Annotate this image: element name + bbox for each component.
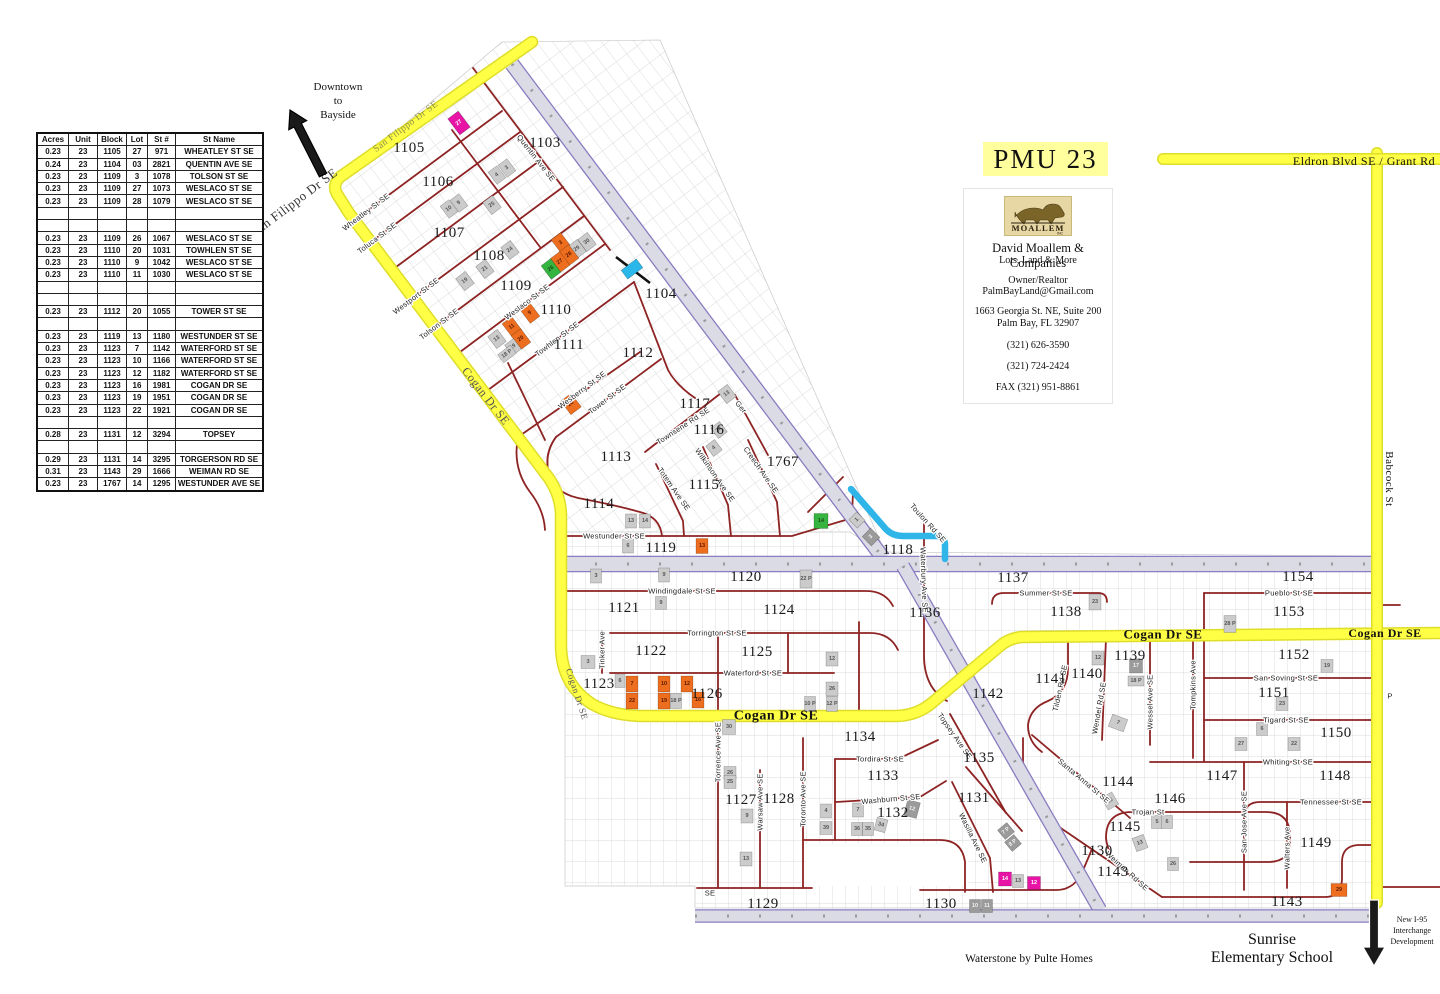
block-label-1151-35: 1151 (1258, 685, 1289, 701)
block-label-1153-24: 1153 (1273, 604, 1304, 620)
lot-12-70: 12 (1092, 651, 1104, 665)
cell (98, 318, 127, 330)
table-row: 0.29231131143295TORGERSON RD SE (37, 453, 263, 465)
cell: 0.23 (37, 478, 69, 491)
cell (176, 220, 264, 232)
lot-25-53: 25 (724, 776, 736, 789)
cell (98, 293, 127, 305)
cell: 12 (127, 429, 148, 441)
lot-5-81: 5 (1152, 816, 1163, 829)
lot-35-60: 35 (863, 823, 874, 836)
lot-6-82: 6 (1162, 816, 1173, 829)
lot-number: 26 (829, 686, 835, 692)
cell: TOLSON ST SE (176, 170, 264, 182)
cell: WATERFORD ST SE (176, 355, 264, 367)
block-label-1120-18: 1120 (730, 569, 761, 585)
lot-22-79: 22 (1288, 738, 1300, 751)
block-label-1130-52: 1130 (925, 896, 956, 912)
cell: 11 (127, 269, 148, 281)
block-label-1116-11: 1116 (694, 422, 725, 438)
block-label-1152-28: 1152 (1278, 647, 1309, 663)
cell: 23 (69, 379, 98, 391)
cell (148, 281, 176, 293)
block-label-1103-1: 1103 (529, 135, 560, 151)
col-header-unit: Unit (69, 133, 98, 146)
lot-6-39: 6 (615, 675, 625, 688)
cell: 0.23 (37, 367, 69, 379)
cell: 1031 (148, 244, 176, 256)
lot-19-75: 19 (1321, 660, 1333, 673)
block-label-1117-10: 1117 (680, 396, 711, 412)
block-label-1142-34: 1142 (972, 686, 1003, 702)
cell (69, 293, 98, 305)
cell: 1123 (98, 404, 127, 416)
block-label-1148-40: 1148 (1319, 768, 1350, 784)
cell (69, 207, 98, 219)
cell (69, 220, 98, 232)
cell: 1030 (148, 269, 176, 281)
table-row: 0.23231109281079WESLACO ST SE (37, 195, 263, 207)
cell: 0.23 (37, 146, 69, 158)
cell: WESTUNDER AVE SE (176, 478, 264, 491)
lot-7-40: 7 (626, 676, 638, 692)
lot-18-p-44: 18 P (670, 694, 682, 709)
street-label-windingdale-st-se: Windingdale St SE (648, 587, 716, 596)
sunrise-label-line-1: Elementary School (1211, 949, 1334, 966)
block-label-1130-50: 1130 (1081, 843, 1112, 859)
cell: 1295 (148, 478, 176, 491)
lot-number: 39 (823, 825, 829, 831)
lot-3-38: 3 (581, 656, 595, 669)
lot-table-body: 0.2323110527971WHEATLEY ST SE0.242311040… (37, 146, 263, 491)
block-label-1109-5: 1109 (500, 278, 531, 294)
table-row: 0.23231123221921COGAN DR SE (37, 404, 263, 416)
lot-11-69: 11 (982, 900, 993, 913)
col-header-st-: St # (148, 133, 176, 146)
lot-number: 28 P (1224, 621, 1236, 627)
block-label-1133-41: 1133 (867, 768, 898, 784)
cell (176, 416, 264, 428)
street-label-pueblo-st-se: Pueblo St SE (1265, 589, 1313, 598)
street-label-san-soving-st-se: San Soving St SE (1254, 674, 1318, 683)
lot-number: 22 P (800, 576, 812, 582)
cell (37, 318, 69, 330)
lot-29-85: 29 (1331, 884, 1347, 897)
cell (127, 416, 148, 428)
cell: WESLACO ST SE (176, 183, 264, 195)
cell: 0.23 (37, 256, 69, 268)
lot-number: 6 (626, 543, 629, 549)
lot-number: 23 (1092, 599, 1098, 605)
street-label-se: SE (705, 889, 716, 898)
cell: 1123 (98, 392, 127, 404)
cell: 03 (127, 158, 148, 170)
cell: 7 (127, 343, 148, 355)
lot-number: 5 (1155, 819, 1158, 825)
lot-number: 6 (1165, 819, 1168, 825)
street-label-wessel-ave-se: Wessel Ave SE (1146, 675, 1155, 730)
lot-18-p-72: 18 P (1128, 676, 1144, 686)
block-label-1115-14: 1115 (689, 477, 720, 493)
col-header-lot: Lot (127, 133, 148, 146)
cell: WESLACO ST SE (176, 232, 264, 244)
table-row: 0.23231123121182WATERFORD ST SE (37, 367, 263, 379)
cell: 1067 (148, 232, 176, 244)
block-label-1122-26: 1122 (635, 643, 666, 659)
block-label-1137-19: 1137 (997, 570, 1028, 586)
cell: 0.23 (37, 379, 69, 391)
table-row: 0.24231104032821QUENTIN AVE SE (37, 158, 263, 170)
cell: 23 (69, 453, 98, 465)
cell (176, 318, 264, 330)
cell: 1110 (98, 244, 127, 256)
realtor-card: MOALLEM INC David Moallem & Companies Lo… (963, 188, 1113, 404)
cell: 1767 (98, 478, 127, 491)
cell: 0.23 (37, 170, 69, 182)
lot-number: 10 (972, 903, 978, 909)
block-label-1131-42: 1131 (958, 790, 989, 806)
cell: 1921 (148, 404, 176, 416)
cell (127, 441, 148, 453)
lot-number: 27 (1238, 741, 1244, 747)
cell: 1073 (148, 183, 176, 195)
cell (176, 281, 264, 293)
block-label-1111-8: 1111 (554, 337, 584, 353)
cell: 0.29 (37, 453, 69, 465)
lot-number: 18 P (670, 698, 682, 704)
street-label-tigard-st-se: Tigard St SE (1263, 716, 1309, 725)
road-label-cogan-dr-se-4: Cogan Dr SE (734, 709, 819, 724)
downtown-label-line-1: to (334, 95, 343, 107)
lot-13-66: 13 (1013, 875, 1024, 888)
cell (98, 281, 127, 293)
cell: 22 (127, 404, 148, 416)
cell: 2821 (148, 158, 176, 170)
block-label-1121-21: 1121 (608, 600, 639, 616)
waterstone-label: Waterstone by Pulte Homes (965, 953, 1093, 965)
street-label-walters-ave: Walters Ave (1283, 827, 1292, 870)
lot-number: 13 (743, 856, 749, 862)
block-label-1112-9: 1112 (623, 345, 654, 361)
block-label-1123-32: 1123 (583, 676, 614, 692)
cell: 1951 (148, 392, 176, 404)
table-row: 0.23231112201055TOWER ST SE (37, 306, 263, 318)
cell: 1104 (98, 158, 127, 170)
cell: COGAN DR SE (176, 404, 264, 416)
block-label-1139-29: 1139 (1114, 648, 1145, 664)
cell: 27 (127, 146, 148, 158)
lot-number: 12 P (826, 701, 838, 707)
lot-number: 26 (1170, 861, 1176, 867)
i95-label-line-2: Development (1390, 937, 1434, 946)
table-row: 0.23231123101166WATERFORD ST SE (37, 355, 263, 367)
lot-10-42: 10 (658, 676, 670, 692)
block-label-1147-39: 1147 (1206, 768, 1237, 784)
road-label-cogan-dr-se-5: Cogan Dr SE (1124, 627, 1203, 642)
table-row-empty (37, 281, 263, 293)
road-label-eldron-blvd-se-grant-rd-7: Eldron Blvd SE / Grant Rd (1293, 154, 1435, 168)
lot-number: 9 (659, 600, 662, 606)
lot-number: 14 (818, 518, 825, 524)
email-address: PalmBayLand@Gmail.com (964, 286, 1112, 297)
phone-1: (321) 626-3590 (964, 340, 1112, 351)
lot-number: 19 (1324, 663, 1330, 669)
table-row-empty (37, 416, 263, 428)
lot-14-65: 14 (999, 872, 1012, 886)
lot-12-p-50: 12 P (826, 697, 838, 712)
cell: 1109 (98, 195, 127, 207)
lot-13-55: 13 (740, 852, 752, 866)
block-label-1110-7: 1110 (541, 302, 572, 318)
block-label-1143-54: 1143 (1271, 894, 1302, 910)
street-label-westunder-st-se: Westunder St SE (583, 532, 645, 541)
cell (148, 441, 176, 453)
block-label-1144-47: 1144 (1102, 774, 1133, 790)
table-row: 0.23231119131180WESTUNDER ST SE (37, 330, 263, 342)
i95-label-line-1: Interchange (1393, 926, 1431, 935)
cell (127, 318, 148, 330)
block-label-1126-33: 1126 (691, 686, 722, 702)
cell: 3295 (148, 453, 176, 465)
cell (98, 220, 127, 232)
cell: 3294 (148, 429, 176, 441)
lot-13-32: 13 (696, 539, 708, 554)
cell: WESLACO ST SE (176, 269, 264, 281)
cell: 0.23 (37, 404, 69, 416)
cell: 16 (127, 379, 148, 391)
lot-3-33: 3 (591, 569, 602, 583)
cell (127, 207, 148, 219)
lot-number: 13 (1015, 878, 1021, 884)
table-row: 0.2323111091042WESLACO ST SE (37, 256, 263, 268)
lot-number: 14 (1002, 876, 1009, 882)
lot-table: AcresUnitBlockLotSt #St Name 0.232311052… (36, 132, 264, 492)
cell: 1166 (148, 355, 176, 367)
block-label-1106-2: 1106 (422, 174, 453, 190)
col-header-acres: Acres (37, 133, 69, 146)
street-label-whiting-st-se: Whiting St SE (1263, 758, 1313, 767)
cell: 1182 (148, 367, 176, 379)
lot-23-37: 23 (1089, 594, 1101, 610)
owner-role: Owner/Realtor (964, 275, 1112, 286)
lot-number: 23 (1279, 701, 1285, 707)
lot-26-84: 26 (1168, 858, 1179, 871)
table-row: 0.31231143291666WEIMAN RD SE (37, 466, 263, 478)
cell: 19 (127, 392, 148, 404)
street-label-tennessee-st-se: Tennessee St SE (1300, 798, 1362, 807)
cell (69, 416, 98, 428)
cell: WATERFORD ST SE (176, 343, 264, 355)
lot-4-56: 4 (821, 804, 832, 818)
cell: 13 (127, 330, 148, 342)
cell: WEIMAN RD SE (176, 466, 264, 478)
lot-36-59: 36 (852, 823, 863, 836)
lot-number: 29 (1336, 887, 1342, 893)
cell: 14 (127, 478, 148, 491)
cell (176, 207, 264, 219)
cell: 1110 (98, 256, 127, 268)
lot-9-36: 9 (656, 597, 667, 610)
table-row-empty (37, 441, 263, 453)
cell: 12 (127, 367, 148, 379)
cell: 1131 (98, 453, 127, 465)
cell: 1131 (98, 429, 127, 441)
city-state-zip: Palm Bay, FL 32907 (964, 318, 1112, 329)
table-row: 0.23231109271073WESLACO ST SE (37, 183, 263, 195)
cell: WESLACO ST SE (176, 256, 264, 268)
table-row: 0.23231110201031TOWHLEN ST SE (37, 244, 263, 256)
cell (37, 441, 69, 453)
block-label-1108-4: 1108 (473, 248, 504, 264)
cell (148, 207, 176, 219)
lot-number: 3 (594, 573, 597, 579)
cell: 23 (69, 404, 98, 416)
block-label-1138-23: 1138 (1050, 604, 1081, 620)
table-row: 0.23231109261067WESLACO ST SE (37, 232, 263, 244)
moallem-logo: MOALLEM INC (1004, 196, 1072, 236)
lot-26-48: 26 (826, 682, 838, 696)
lot-9-54: 9 (741, 809, 753, 823)
cell: WHEATLEY ST SE (176, 146, 264, 158)
lot-28-p-74: 28 P (1224, 616, 1236, 633)
lot-number: 7 (630, 681, 633, 687)
cell: 1981 (148, 379, 176, 391)
cell (69, 318, 98, 330)
lot-number: 9 (745, 813, 748, 819)
cell: 1109 (98, 170, 127, 182)
cell (69, 281, 98, 293)
block-label-1150-36: 1150 (1320, 725, 1351, 741)
lot-number: 9 (662, 572, 665, 578)
lot-19-43: 19 (658, 693, 670, 709)
cell: 3 (127, 170, 148, 182)
block-label-1135-38: 1135 (963, 750, 994, 766)
street-label-trojan-st: Trojan St (1132, 808, 1165, 817)
cell: 1666 (148, 466, 176, 478)
table-row-empty (37, 207, 263, 219)
table-row: 0.23231110111030WESLACO ST SE (37, 269, 263, 281)
cell (98, 441, 127, 453)
lot-6-31: 6 (623, 539, 634, 553)
cell: 23 (69, 146, 98, 158)
lot-number: 30 (726, 724, 732, 730)
cell: 0.23 (37, 355, 69, 367)
lot-number: 14 (642, 518, 649, 524)
cell: 23 (69, 306, 98, 318)
cell: 0.23 (37, 244, 69, 256)
lot-14-26: 14 (814, 514, 828, 529)
downtown-label-line-2: Bayside (320, 109, 356, 121)
cell (37, 220, 69, 232)
block-label-1134-37: 1134 (844, 729, 875, 745)
street-label-p: P (1387, 692, 1392, 701)
cell: 0.23 (37, 183, 69, 195)
cell (69, 441, 98, 453)
cell (98, 416, 127, 428)
lot-9-34: 9 (659, 568, 670, 582)
lot-number: 22 (629, 698, 635, 704)
cell: 1119 (98, 330, 127, 342)
cell: 23 (69, 367, 98, 379)
cell: 0.23 (37, 232, 69, 244)
cell: 1109 (98, 232, 127, 244)
cell (176, 293, 264, 305)
cell (148, 318, 176, 330)
cell (37, 293, 69, 305)
block-label-1145-48: 1145 (1109, 819, 1140, 835)
cell: 1142 (148, 343, 176, 355)
street-label-torrence-ave-se: Torrence Ave SE (714, 722, 723, 782)
lot-number: 7 (856, 807, 859, 813)
cell: 0.23 (37, 392, 69, 404)
cell: 23 (69, 269, 98, 281)
cell: 23 (69, 170, 98, 182)
cell: 1078 (148, 170, 176, 182)
cell: 23 (69, 330, 98, 342)
cell: 23 (69, 244, 98, 256)
col-header-st-name: St Name (176, 133, 264, 146)
cell: 26 (127, 232, 148, 244)
cell (37, 281, 69, 293)
cell: 9 (127, 256, 148, 268)
street-label-toronto-ave-se: Toronto Ave SE (799, 771, 808, 827)
cell: 1143 (98, 466, 127, 478)
street-label-summer-st-se: Summer St SE (1019, 589, 1072, 598)
cell: 971 (148, 146, 176, 158)
cell: 23 (69, 158, 98, 170)
cell: 1112 (98, 306, 127, 318)
unplatted-area (806, 844, 968, 886)
block-label-1104-6: 1104 (645, 286, 676, 302)
cell: WATERFORD ST SE (176, 367, 264, 379)
block-label-1107-3: 1107 (433, 225, 464, 241)
table-row-empty (37, 318, 263, 330)
block-label-1128-45: 1128 (763, 791, 794, 807)
cell: 1180 (148, 330, 176, 342)
lot-number: 26 (727, 770, 733, 776)
cell (148, 220, 176, 232)
street-address: 1663 Georgia St. NE, Suite 200 (964, 306, 1112, 317)
block-label-1127-44: 1127 (725, 792, 756, 808)
cell: 23 (69, 256, 98, 268)
cell: 23 (69, 183, 98, 195)
cell: 23 (69, 343, 98, 355)
table-row: 0.28231131123294TOPSEY (37, 429, 263, 441)
map-page: 2743109252421193302928272691120131918 P2… (0, 0, 1440, 994)
cell: 1123 (98, 379, 127, 391)
lot-number: 12 (829, 656, 835, 662)
cell: 23 (69, 466, 98, 478)
cell (148, 293, 176, 305)
table-row: 0.2323112371142WATERFORD ST SE (37, 343, 263, 355)
cell: 23 (69, 429, 98, 441)
cell: 1042 (148, 256, 176, 268)
block-label-1141-31: 1141 (1035, 671, 1066, 687)
cell (127, 293, 148, 305)
table-row: 0.23231767141295WESTUNDER AVE SE (37, 478, 263, 491)
block-label-1129-53: 1129 (747, 896, 778, 912)
cell: 0.23 (37, 269, 69, 281)
table-row: 0.2323110527971WHEATLEY ST SE (37, 146, 263, 158)
lot-table-head: AcresUnitBlockLotSt #St Name (37, 133, 263, 146)
cell: TOWHLEN ST SE (176, 244, 264, 256)
lot-39-58: 39 (820, 822, 832, 835)
road-label-babcock-st-8: Babcock St (1383, 451, 1395, 506)
road-label-cogan-dr-se-6: Cogan Dr SE (1348, 626, 1421, 640)
lot-22-41: 22 (626, 693, 638, 709)
table-row: 0.23231123161981COGAN DR SE (37, 379, 263, 391)
block-label-1767-13: 1767 (767, 454, 799, 470)
